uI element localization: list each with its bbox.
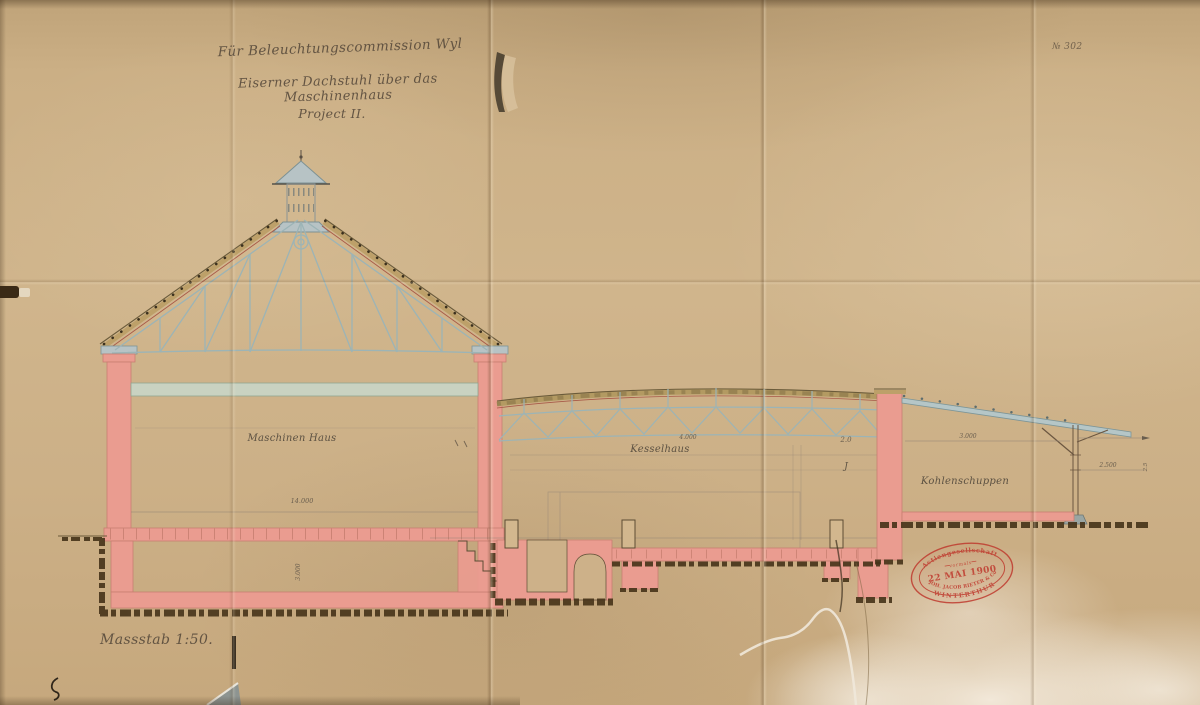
label-kohlenschuppen: Kohlenschuppen — [920, 476, 1009, 487]
dim-depth: 3.000 — [295, 563, 302, 580]
foundations-middle — [493, 520, 892, 602]
maschinenhaus-truss — [112, 220, 490, 353]
paper-edge-top — [0, 0, 1200, 9]
dim-kohlen-overhang: 2.500 — [1098, 462, 1116, 469]
reference-ticks — [455, 440, 467, 447]
section-drawing: 14.000 3.000 Maschinen Haus — [0, 0, 1200, 705]
tear-bottom-edge — [740, 609, 856, 705]
sheet-number: № 302 — [1052, 42, 1083, 52]
foundation-opening-rect — [527, 540, 567, 592]
foundation-opening-arch — [574, 554, 606, 600]
kohlenschuppen-section: 3.000 2.500 2.5 Kohlenschuppen — [874, 389, 1150, 562]
mark-j: J — [842, 462, 849, 472]
fold-dark-dash — [232, 636, 236, 669]
dim-kohlen-span: 3.000 — [959, 433, 976, 440]
tear-top-flap — [502, 55, 518, 112]
kohlenschuppen-roof — [902, 398, 1131, 437]
edge-notch — [19, 288, 30, 297]
company-stamp: Actiengesellschaft vormals 22 MAI 1900 J… — [907, 536, 1017, 609]
kohlenschuppen-wall — [877, 392, 902, 560]
roof-lantern — [272, 150, 330, 232]
paper-edge-bottom-left — [0, 696, 520, 705]
dim-kesselhaus-small: 2.0 — [839, 436, 852, 444]
edge-stain — [0, 286, 19, 298]
dim-span: 14.000 — [291, 497, 314, 505]
dim-kohlen-height: 2.5 — [1143, 462, 1149, 472]
kohlenschuppen-roof-ticks — [904, 396, 1076, 422]
scale-note: Massstab 1:50. — [100, 632, 213, 648]
title-line-3: Project II. — [262, 106, 402, 121]
kohlenschuppen-floor — [902, 512, 1074, 521]
basement — [111, 541, 503, 608]
label-kesselhaus: Kesselhaus — [629, 444, 689, 455]
label-maschinenhaus: Maschinen Haus — [246, 433, 336, 444]
maschinenhaus-section: 14.000 3.000 Maschinen Haus — [58, 150, 508, 614]
paper-edge-left — [0, 0, 6, 705]
dim-arrowhead — [1142, 436, 1150, 440]
crane-girder — [131, 383, 478, 396]
floor-slab — [104, 528, 504, 541]
dim-kesselhaus-width: 4.000 — [678, 434, 696, 441]
drawing-sheet: 14.000 3.000 Maschinen Haus — [0, 0, 1200, 705]
